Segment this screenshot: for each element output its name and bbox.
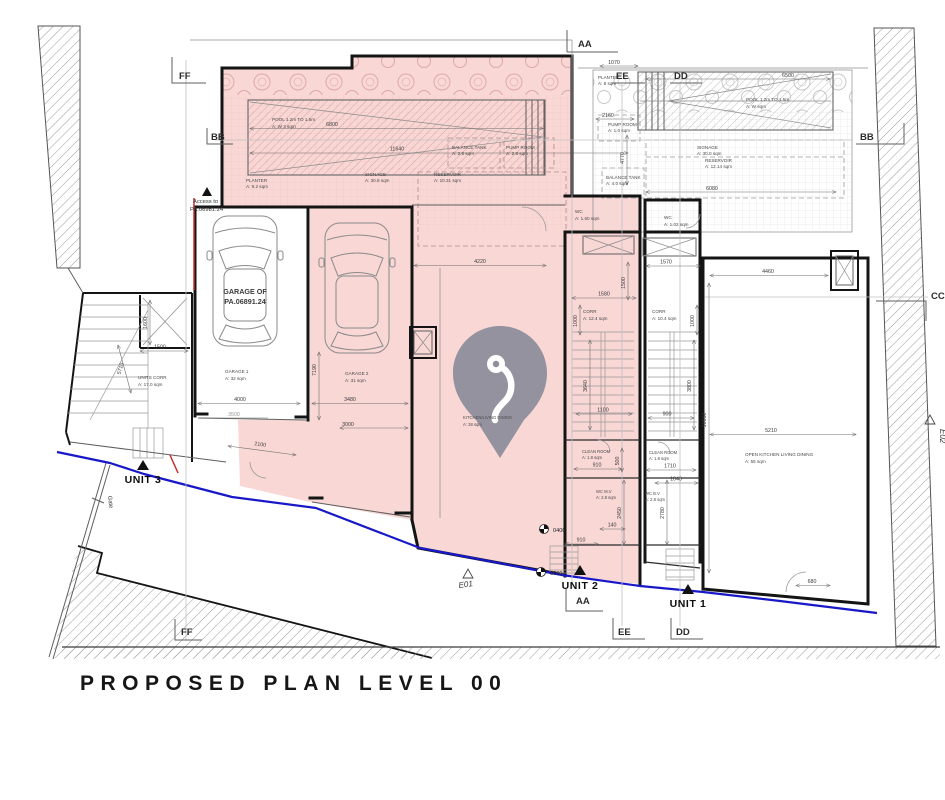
dim-3500: 3500 xyxy=(228,412,240,418)
section-marker-ff-bottom: FF xyxy=(181,627,193,638)
section-marker-aa-bottom: AA xyxy=(576,596,590,607)
access-label-2: PA.06981.24 xyxy=(190,207,224,213)
garage-of-label-1: GARAGE OF xyxy=(223,287,267,296)
section-marker-aa-top: AA xyxy=(578,39,592,50)
dim-500: 500 xyxy=(615,457,621,466)
open-kitchen-label-2: A: 55 sqm xyxy=(745,459,766,464)
pump-room-right-label-1: PUMP ROOM xyxy=(608,122,637,127)
dim-1710: 1710 xyxy=(664,464,676,470)
unit-1-label: UNIT 1 xyxy=(670,598,707,610)
wc-pink-label-1: WC xyxy=(575,209,583,214)
dim-2450: 2450 xyxy=(617,507,623,519)
dim-5210: 5210 xyxy=(765,428,777,434)
dim-1600: 1600 xyxy=(143,317,149,329)
dim-2160: 2160 xyxy=(602,113,614,119)
planter-band-left xyxy=(222,56,570,95)
planter-left-label-2: A: 9.2 sqm xyxy=(246,184,268,189)
wc-bv-label-1: WC B.V xyxy=(645,491,660,496)
units-corr-label-2: A: 17.0 sqm xyxy=(138,382,163,387)
planter-left-label-1: PLANTER xyxy=(246,178,268,183)
pump-room-right-label-2: A: 1.0 sqm xyxy=(608,128,630,133)
reservoir-left-label-2: A: 10.31 sqm xyxy=(434,178,461,183)
balance-tank-left-label-1: BALANCE TANK xyxy=(452,145,487,150)
dim-1580: 1580 xyxy=(598,292,610,298)
dim-140: 140 xyxy=(608,523,617,529)
wc-white-label-1: WC xyxy=(664,215,672,220)
existing-wall-hatch-left xyxy=(38,26,83,293)
dim-3000: 3000 xyxy=(342,422,354,428)
balance-tank-left-label-2: A: 2.8 sqm xyxy=(452,151,474,156)
dim-1570: 1570 xyxy=(660,260,672,266)
clean-room-right-label-2: A: 1.8 sqm xyxy=(649,456,670,461)
floor-plan-drawing: AA AA BB BB CC DD DD EE EE FF FF UNIT 3 … xyxy=(0,0,945,800)
pavement-hatch-bottom xyxy=(62,647,940,659)
dim-11640: 11640 xyxy=(390,147,404,153)
dim-1000-left: 1000 xyxy=(573,315,579,327)
kitchen-living-label-1: KITCHEN/LIVING DINING xyxy=(463,415,512,420)
unit-3-label: UNIT 3 xyxy=(125,474,162,486)
kitchen-living-label-2: A: 38 sqm xyxy=(463,422,482,427)
dim-1040: 1040 xyxy=(670,477,682,483)
dim-3480: 3480 xyxy=(344,397,356,403)
dim-1070: 1070 xyxy=(608,60,620,66)
reservoir-right-label-1: RESERVOIR xyxy=(705,158,733,163)
section-marker-dd-top: DD xyxy=(674,71,688,82)
garage1-label-1: GARAGE 1 xyxy=(225,369,249,374)
pool-deck-tiles-left2 xyxy=(412,205,570,228)
dim-7190: 7190 xyxy=(312,364,318,376)
section-marker-cc: CC xyxy=(931,291,945,302)
pool-right-label-2: A: W sqm xyxy=(746,104,766,109)
pool-left-label-1: POOL 1.2m TO 1.5m xyxy=(272,117,315,122)
open-kitchen-label-1: OPEN KITCHEN LIVING DINING xyxy=(745,452,814,457)
wc-mv-label-2: A: 2.8 sqm xyxy=(596,495,617,500)
access-label-1: Access to xyxy=(193,199,218,205)
wc-white-label-2: A: 1.02 sqm xyxy=(664,222,689,227)
dim-4220: 4220 xyxy=(474,259,486,265)
dim-680: 680 xyxy=(808,579,817,585)
dim-910-b: 910 xyxy=(577,538,586,544)
clean-room-left-label-2: A: 1.8 sqm xyxy=(582,455,603,460)
wc-pink-label-2: A: 1.60 sqm xyxy=(575,216,600,221)
signage-right-label-1: SIGNAGE xyxy=(697,145,718,150)
dim-2780: 2780 xyxy=(660,507,666,519)
section-marker-dd-bottom: DD xyxy=(676,627,690,638)
garage2-label-1: GARAGE 2 xyxy=(345,371,369,376)
corr-white-label-1: CORR xyxy=(652,309,666,314)
section-marker-ff-top: FF xyxy=(179,71,191,82)
dim-6500: 6500 xyxy=(782,73,794,79)
dim-1500-h: 1500 xyxy=(154,345,166,351)
section-marker-bb-left: BB xyxy=(211,132,225,143)
signage-right-label-2: A: 30.0 sqm xyxy=(697,151,722,156)
dim-10660: 10660 xyxy=(702,413,708,428)
reservoir-right-label-2: A: 12.14 sqm xyxy=(705,164,732,169)
boundary-red-line-2 xyxy=(170,455,178,473)
signage-left-label-1: SIGNAGE xyxy=(365,172,386,177)
dim-1500-v: 1500 xyxy=(621,277,627,289)
dim-6080: 6080 xyxy=(706,186,718,192)
dim-910-a: 910 xyxy=(593,463,602,469)
dim-1000-right: 1000 xyxy=(690,315,696,327)
level-0400: 0400 xyxy=(553,528,565,534)
dim-4460: 4460 xyxy=(762,269,774,275)
reservoir-left-label-1: RESERVOIR xyxy=(434,172,462,177)
elevation-marker-e02: E02 xyxy=(938,429,945,444)
signage-left-label-2: A: 30.8 sqm xyxy=(365,178,390,183)
existing-wall-hatch-right xyxy=(874,28,936,646)
dim-3800: 3800 xyxy=(687,380,693,392)
sheet-title: PROPOSED PLAN LEVEL 00 xyxy=(80,672,507,695)
floor-plan-sheet: AA AA BB BB CC DD DD EE EE FF FF UNIT 3 … xyxy=(0,0,945,800)
clean-room-right-label-1: CLEAN ROOM xyxy=(649,450,678,455)
unit-2-label: UNIT 2 xyxy=(562,580,599,592)
planter-right-label-2: A: 8 sqm xyxy=(598,81,616,86)
garage2-label-2: A: 31 sqm xyxy=(345,378,366,383)
pump-room-left-label-1: PUMP ROOM xyxy=(506,145,535,150)
wc-bv-label-2: A: 2.8 sqm xyxy=(645,497,666,502)
units-corr-label-1: UNITS CORR xyxy=(138,375,167,380)
section-marker-bb-right: BB xyxy=(860,132,874,143)
dim-900: 900 xyxy=(663,412,672,418)
section-marker-ee-bottom: EE xyxy=(618,627,631,638)
balance-tank-right-label-2: A: 4.0 sqm xyxy=(606,181,628,186)
balance-tank-right-label-1: BALANCE TANK xyxy=(606,175,641,180)
dim-4770: 4770 xyxy=(620,152,626,164)
garage1-label-2: A: 32 sqm xyxy=(225,376,246,381)
gate-label: Gate xyxy=(106,496,113,509)
corr-white-label-2: A: 10.4 sqm xyxy=(652,316,677,321)
pool-right-label-1: POOL 1.2m TO 1.5m xyxy=(746,97,789,102)
corr-pink-label-2: A: 12.4 sqm xyxy=(583,316,608,321)
dim-4000: 4000 xyxy=(234,397,246,403)
dim-6800: 6800 xyxy=(326,122,338,128)
level-0000: 0000 xyxy=(550,571,562,577)
clean-room-left-label-1: CLEAN ROOM xyxy=(582,449,611,454)
planter-right-label-1: PLANTER xyxy=(598,75,620,80)
wc-mv-label-1: WC M.V xyxy=(596,489,612,494)
pump-room-left-label-2: A: 2.8 sqm xyxy=(506,151,528,156)
garage-of-label-2: PA.06891.24 xyxy=(224,297,265,306)
car-1-icon xyxy=(207,216,283,346)
dim-3640: 3640 xyxy=(583,380,589,392)
elevation-marker-e01: E01 xyxy=(458,579,473,590)
pool-left-label-2: A: W 3 sqm xyxy=(272,124,296,129)
dim-1100: 1100 xyxy=(597,408,608,414)
corr-pink-label-1: CORR xyxy=(583,309,597,314)
